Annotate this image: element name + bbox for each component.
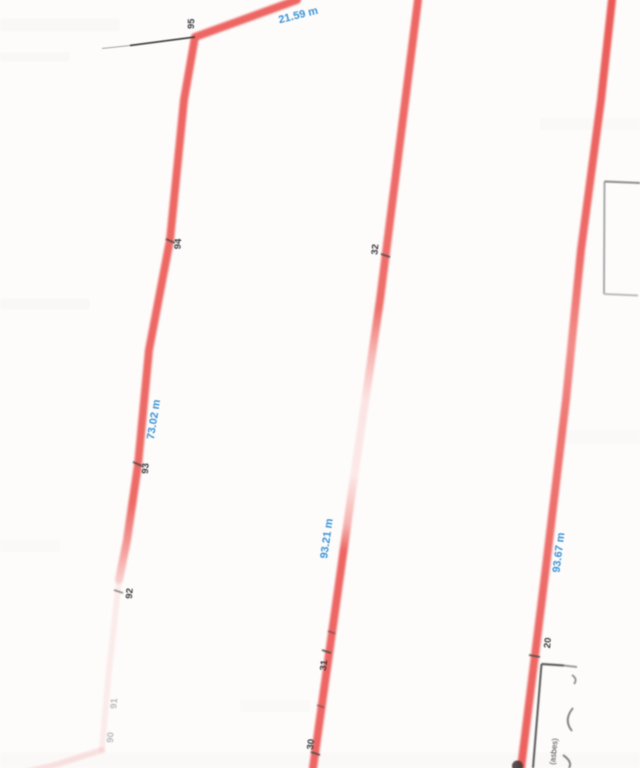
- svg-text:32: 32: [370, 244, 382, 256]
- svg-text:30: 30: [305, 738, 317, 750]
- svg-text:94: 94: [173, 238, 185, 250]
- svg-text:90: 90: [105, 732, 117, 743]
- svg-text:31: 31: [318, 659, 330, 672]
- svg-text:95: 95: [186, 18, 196, 29]
- svg-text:20: 20: [542, 637, 554, 649]
- svg-text:93: 93: [140, 463, 152, 474]
- svg-text:91: 91: [109, 697, 121, 709]
- svg-text:92: 92: [124, 588, 136, 599]
